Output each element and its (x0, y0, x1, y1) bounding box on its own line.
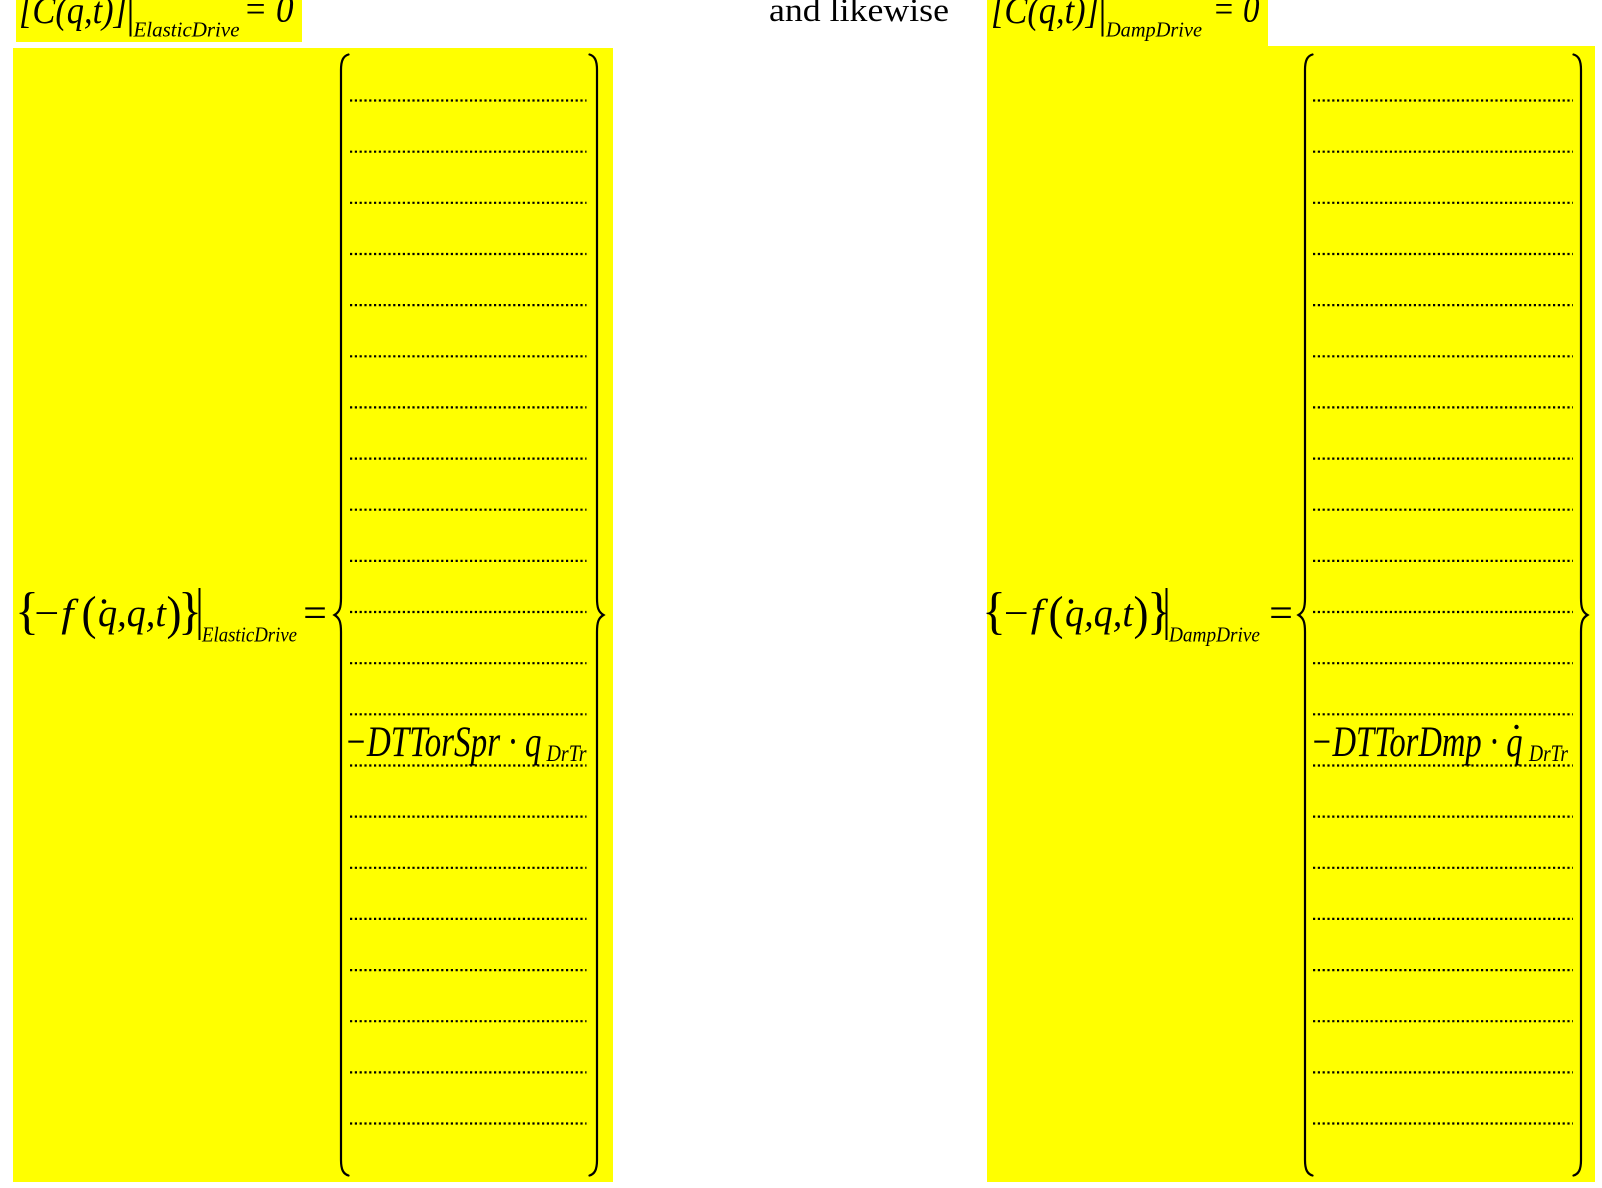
svg-text:−DTTorSpr · q: −DTTorSpr · q (345, 719, 542, 766)
svg-text:−f: −f (1001, 592, 1049, 635)
svg-text:DampDrive: DampDrive (1105, 18, 1202, 42)
svg-text:}: } (178, 583, 202, 640)
svg-text:ElasticDrive: ElasticDrive (201, 623, 297, 647)
svg-text:= 0: = 0 (244, 0, 294, 31)
svg-text:= 0: = 0 (1213, 0, 1260, 31)
svg-text:q,q,t: q,q,t (1065, 592, 1134, 635)
svg-text:(: ( (82, 587, 97, 640)
svg-text:ElasticDrive: ElasticDrive (133, 18, 240, 42)
svg-text:DrTr: DrTr (1528, 741, 1569, 766)
svg-text:[C(q,t)]: [C(q,t)] (19, 0, 127, 32)
svg-text:DrTr: DrTr (546, 741, 588, 766)
svg-text:−f: −f (32, 592, 80, 635)
svg-text:(: ( (1049, 587, 1064, 640)
svg-text:DampDrive: DampDrive (1168, 623, 1260, 647)
svg-text:=: = (301, 591, 329, 637)
svg-text:[C(q,t)]: [C(q,t)] (991, 0, 1099, 32)
svg-text:−DTTorDmp · q: −DTTorDmp · q (1311, 719, 1523, 766)
svg-text:=: = (1267, 591, 1295, 637)
svg-text:q,q,t: q,q,t (98, 592, 167, 635)
svg-text:and likewise: and likewise (769, 0, 949, 29)
